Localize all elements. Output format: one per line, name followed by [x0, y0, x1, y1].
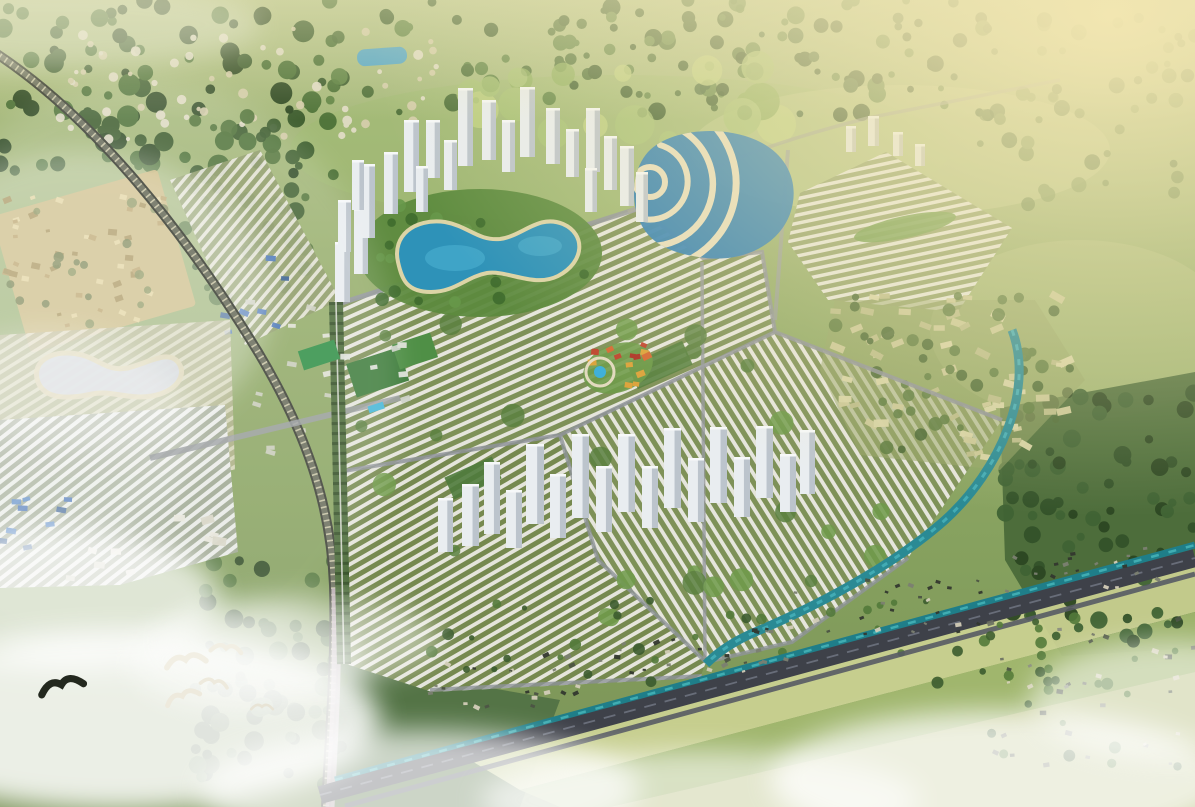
masterplan-aerial-render [0, 0, 1195, 807]
mist [160, 595, 440, 685]
screenshot-stage: Aerial perspective rendering of a master… [0, 0, 1195, 807]
